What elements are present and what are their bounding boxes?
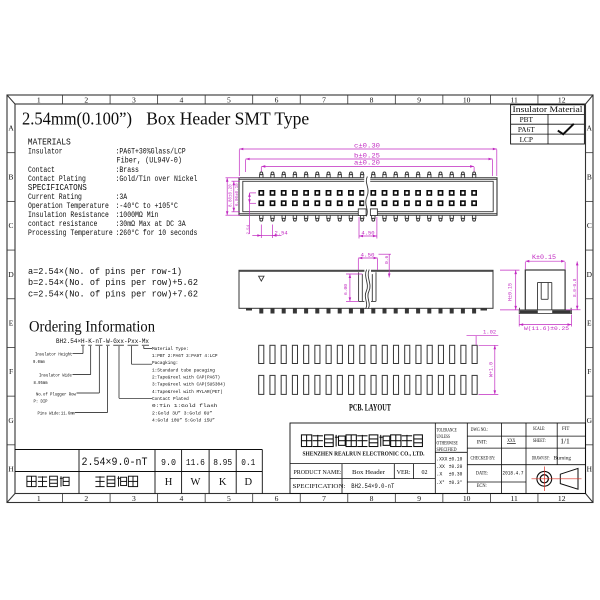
svg-text:2.54: 2.54 [247,224,251,234]
svg-text:CHECKED BY:: CHECKED BY: [471,456,496,461]
svg-text:±0.3°: ±0.3° [449,480,463,486]
svg-text:Burning: Burning [554,456,572,462]
svg-text:a=2.54×(No. of pins per row-1): a=2.54×(No. of pins per row-1) [28,266,182,277]
svg-text:1: 1 [37,96,41,105]
svg-text:DATE:: DATE: [476,472,488,477]
svg-text::260°C for 10 seconds: :260°C for 10 seconds [116,228,198,238]
svg-text:6: 6 [275,96,279,105]
svg-text:4.50: 4.50 [361,252,375,259]
svg-text:FIT: FIT [562,427,570,432]
svg-text:8.95mm: 8.95mm [34,381,48,386]
svg-text:c±0.30: c±0.30 [354,142,380,149]
svg-text:10: 10 [463,96,471,105]
svg-text:UNLESS: UNLESS [437,435,451,440]
svg-text:Ordering Information: Ordering Information [29,319,155,336]
svg-text:D: D [245,477,253,488]
svg-text:SCALE:: SCALE: [533,427,546,432]
svg-text:b=2.54×(No. of pins per row)+5: b=2.54×(No. of pins per row)+5.62 [28,277,198,288]
svg-text:F: F [9,367,13,376]
svg-text:1/1: 1/1 [560,436,570,445]
svg-text:Box Header: Box Header [352,470,385,476]
svg-text:BH2.54×H-K-nT-W-Gxx-Pxx-Mx: BH2.54×H-K-nT-W-Gxx-Pxx-Mx [56,338,149,345]
svg-text:2.54: 2.54 [275,229,289,236]
svg-text:PA6T: PA6T [518,125,535,134]
svg-text:10: 10 [463,494,471,503]
svg-text:Processing Temperature: Processing Temperature [28,228,113,238]
svg-text:7: 7 [322,96,326,105]
svg-text:3:Tape&reel with CAP(SUS304): 3:Tape&reel with CAP(SUS304) [152,382,225,388]
svg-text:Insulator Wide: Insulator Wide [39,374,72,379]
svg-text:1:Standard tube pacaging: 1:Standard tube pacaging [152,367,215,373]
svg-text:H: H [8,465,14,474]
svg-text:1:PBT 2:PA6T 3:PA9T 4:LCP: 1:PBT 2:PA6T 3:PA9T 4:LCP [152,353,218,359]
svg-text:9: 9 [417,96,421,105]
svg-text:C: C [587,221,592,230]
svg-text:11: 11 [511,96,519,105]
svg-text:INIT:: INIT: [477,441,488,446]
svg-text:2: 2 [84,96,88,105]
svg-text:8.95: 8.95 [213,457,232,468]
svg-text:D: D [587,270,593,279]
svg-text:LCP: LCP [520,135,533,144]
svg-text:H: H [587,465,593,474]
svg-text:G: G [8,416,14,425]
svg-text:2: 2 [84,494,88,503]
svg-text:2:Gold 3U” 3:Gold 6U”: 2:Gold 3U” 3:Gold 6U” [152,410,213,416]
svg-text:Pins Wide:11.6mm: Pins Wide:11.6mm [38,412,76,417]
svg-text:Insulator Material: Insulator Material [513,105,584,114]
svg-text:8.0-0.8: 8.0-0.8 [573,278,578,297]
svg-text:4: 4 [179,96,183,105]
svg-text:DRAWN BY:: DRAWN BY: [532,456,550,461]
svg-text:11.6: 11.6 [186,457,205,468]
svg-text:0:Tin 1:Gold flash: 0:Tin 1:Gold flash [152,403,218,409]
svg-text:±0.20: ±0.20 [449,464,463,470]
svg-text:W: W [190,477,200,488]
svg-text:SHEET:: SHEET: [533,439,546,444]
svg-text:Insulator Height: Insulator Height [35,353,73,358]
svg-text:12: 12 [558,96,566,105]
svg-text:K±0.15: K±0.15 [532,254,556,261]
svg-text:12: 12 [558,494,566,503]
svg-text:0.1: 0.1 [241,457,255,468]
svg-text:K: K [219,477,227,488]
svg-text:6.00±0.10: 6.00±0.10 [236,183,240,206]
svg-text:B: B [9,172,14,181]
svg-text:2018.4.7: 2018.4.7 [503,471,524,477]
svg-text:A: A [8,124,14,133]
svg-text:8: 8 [370,96,374,105]
svg-text:9.0: 9.0 [161,457,176,468]
svg-text:A: A [587,124,593,133]
svg-text:ECN:: ECN: [477,484,487,489]
svg-text:4:Tape&reel with MYLAR(PET): 4:Tape&reel with MYLAR(PET) [152,389,223,395]
svg-text:DWG NO.:: DWG NO.: [471,428,488,433]
svg-text:2.54×9.0-nT: 2.54×9.0-nT [82,457,148,469]
svg-text:G: G [587,416,593,425]
svg-text:SHENZHEN REALRUN ELECTRONIC CO: SHENZHEN REALRUN ELECTRONIC CO., LTD. [303,452,425,458]
svg-text:Box Header SMT Type: Box Header SMT Type [146,109,309,129]
svg-text:E: E [587,319,592,328]
svg-text:±0.30: ±0.30 [449,472,463,478]
svg-text:4.50: 4.50 [361,230,374,237]
svg-text:6.00: 6.00 [343,284,349,295]
svg-text:SPECIFIED: SPECIFIED [437,448,457,453]
svg-text:6: 6 [275,494,279,503]
svg-text:W(11.6)±0.25: W(11.6)±0.25 [524,325,569,332]
svg-text:E: E [9,319,14,328]
svg-text:2:Tape&reel with CAP(PA6T): 2:Tape&reel with CAP(PA6T) [152,375,220,381]
svg-text:Contact Plated: Contact Plated [152,396,189,402]
svg-text:7: 7 [322,494,326,503]
svg-text:H±0.15: H±0.15 [507,283,513,301]
svg-text:1.02: 1.02 [483,329,496,336]
svg-text:8: 8 [370,494,374,503]
svg-text:.X: .X [436,472,443,478]
svg-text:b±0.25: b±0.25 [354,152,380,159]
svg-text:4:Gold 10U” 5:Gold 15U”: 4:Gold 10U” 5:Gold 15U” [152,417,215,423]
svg-text:4: 4 [179,494,183,503]
svg-text:PRODUCT NAME:: PRODUCT NAME: [294,470,342,476]
svg-text:3: 3 [132,96,136,105]
svg-text:.XXX: .XXX [436,457,448,463]
svg-text:9.0mm: 9.0mm [33,360,45,365]
svg-text:9: 9 [417,494,421,503]
svg-text:.XX: .XX [436,464,445,470]
svg-text:11: 11 [511,494,519,503]
svg-text:Pacagking:: Pacagking: [152,360,178,366]
svg-text:C: C [9,221,14,230]
svg-text:a±0.20: a±0.20 [354,160,380,167]
svg-text:W+1.0: W+1.0 [488,362,494,377]
svg-text:Insulator: Insulator [28,147,63,157]
svg-text:.X°: .X° [436,480,445,486]
svg-text:P: DIP: P: DIP [34,400,48,405]
svg-text:02: 02 [422,470,428,476]
svg-text:B: B [587,172,592,181]
svg-text:BH2.54×9.0-nT: BH2.54×9.0-nT [351,483,394,490]
svg-text:±0.10: ±0.10 [449,457,463,463]
svg-text:TOLERANCE: TOLERANCE [437,428,457,433]
svg-text:PBT: PBT [520,115,534,124]
svg-text:SPECIFICATION:: SPECIFICATION: [293,484,346,490]
svg-text:2.54mm(0.100”): 2.54mm(0.100”) [22,109,132,130]
svg-text:1: 1 [37,494,41,503]
svg-text:No.of Plugger Row: No.of Plugger Row [36,392,76,397]
svg-text:5: 5 [227,96,231,105]
svg-text:Material Type:: Material Type: [152,346,189,352]
svg-text:3: 3 [132,494,136,503]
svg-text:F: F [587,367,591,376]
svg-text:PCB. LAYOUT: PCB. LAYOUT [349,403,391,413]
svg-text:c=2.54×(No. of pins per row)+7: c=2.54×(No. of pins per row)+7.62 [28,288,198,299]
svg-text::Gold/Tin over Nickel: :Gold/Tin over Nickel [116,174,198,184]
svg-text:8.80±0.20: 8.80±0.20 [230,184,234,207]
svg-text:5: 5 [227,494,231,503]
svg-text:OTHERWISE: OTHERWISE [437,442,458,447]
svg-text:D: D [8,270,14,279]
svg-text:H: H [165,477,173,488]
svg-text:0.6: 0.6 [384,255,390,264]
svg-text:VER:: VER: [397,470,411,476]
